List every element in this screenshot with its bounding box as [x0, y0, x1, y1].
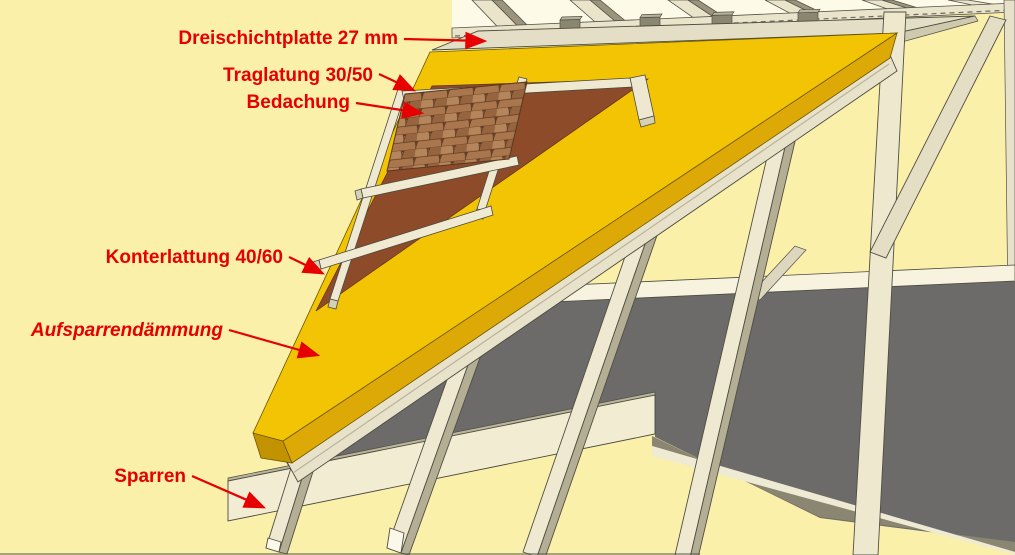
label-bedachung: Bedachung: [247, 92, 350, 114]
label-dreischichtplatte: Dreischichtplatte 27 mm: [178, 28, 398, 50]
spacer-block-top: [640, 14, 662, 18]
spacer-block-icon: [560, 19, 580, 29]
spacer-block-top: [712, 12, 734, 16]
arrow-traglatung: [379, 74, 413, 90]
label-traglatung: Traglatung 30/50: [223, 65, 373, 87]
rafter-beam-endface: [387, 528, 404, 553]
label-sparren: Sparren: [114, 466, 186, 488]
spacer-block-top: [560, 16, 582, 20]
label-aufsparrendaemmung: Aufsparrendämmung: [31, 320, 223, 342]
counter-batten-left-endcap: [328, 299, 338, 309]
spacer-block-icon: [712, 15, 732, 25]
tile-patch: [387, 82, 527, 171]
gable-edge-post: [1004, 0, 1015, 305]
diagram-stage: Dreischichtplatte 27 mm Traglatung 30/50…: [0, 0, 1015, 555]
spacer-block-icon: [798, 12, 818, 22]
spacer-block-top: [798, 9, 820, 13]
label-konterlattung: Konterlattung 40/60: [106, 247, 283, 269]
